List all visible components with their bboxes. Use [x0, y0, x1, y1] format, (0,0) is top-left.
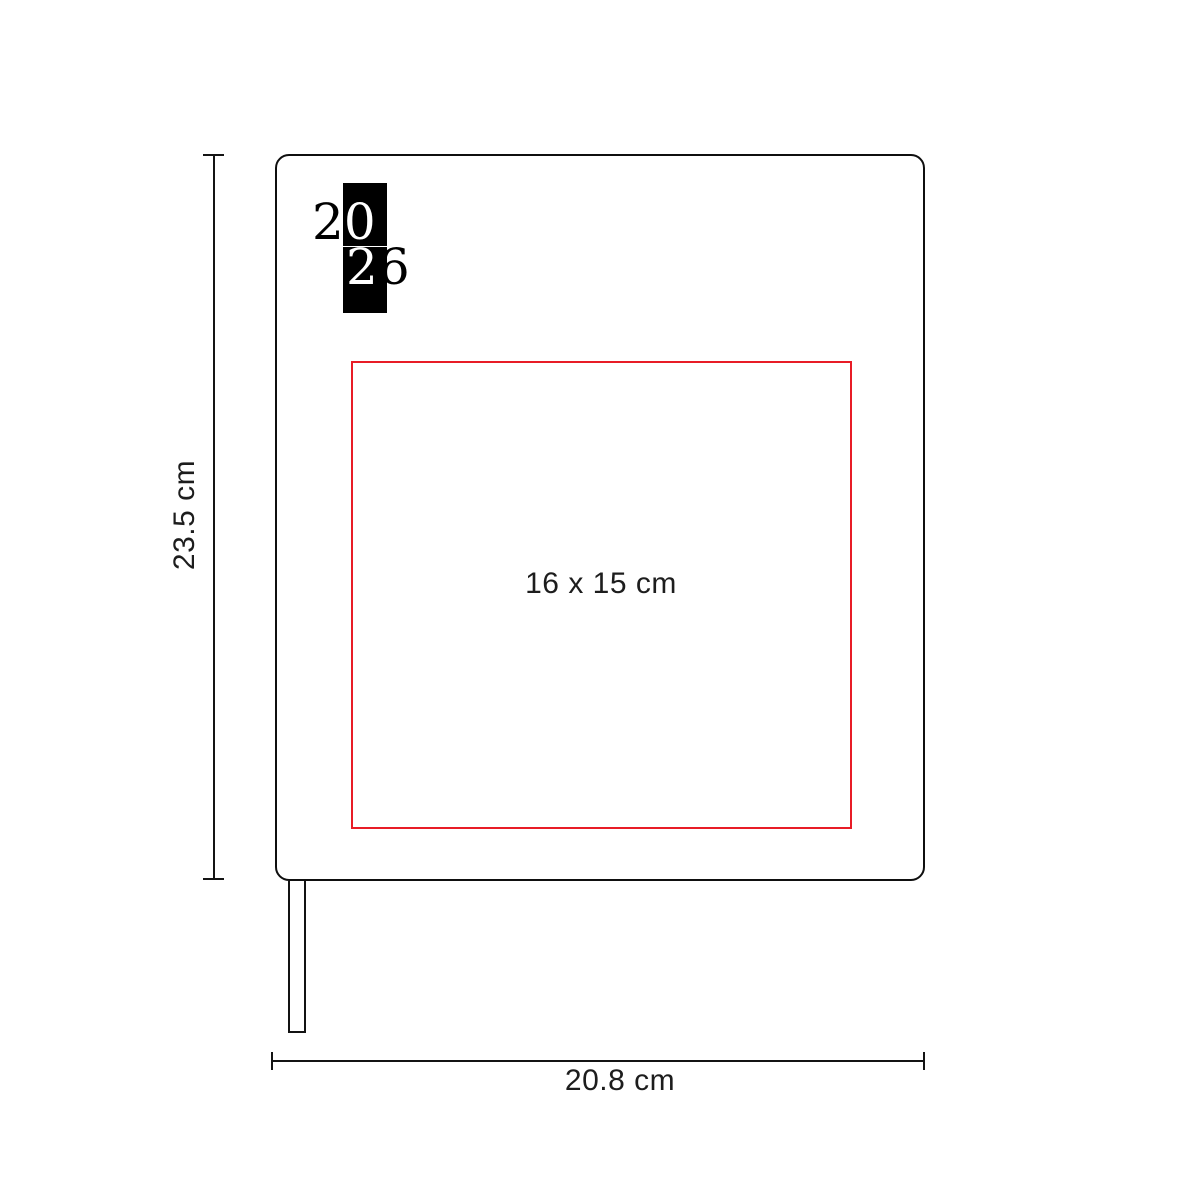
height-dimension-label: 23.5 cm	[166, 375, 204, 655]
logo-digit-2-inverted: 2	[346, 238, 378, 296]
year-logo-row2: 26	[346, 242, 410, 292]
logo-digit-2: 2	[312, 193, 344, 251]
logo-digit-6: 6	[378, 238, 410, 296]
width-dimension-tick-left	[271, 1052, 273, 1070]
height-dimension-tick-top	[203, 154, 224, 156]
height-dimension-line	[213, 155, 215, 880]
width-dimension-label: 20.8 cm	[470, 1062, 770, 1100]
print-area-size-label: 16 x 15 cm	[451, 566, 751, 602]
product-dimension-diagram: 20 26 16 x 15 cm 23.5 cm 20.8 cm	[0, 0, 1200, 1200]
height-dimension-tick-bottom	[203, 878, 224, 880]
width-dimension-tick-right	[923, 1052, 925, 1070]
bookmark-ribbon	[288, 881, 306, 1033]
